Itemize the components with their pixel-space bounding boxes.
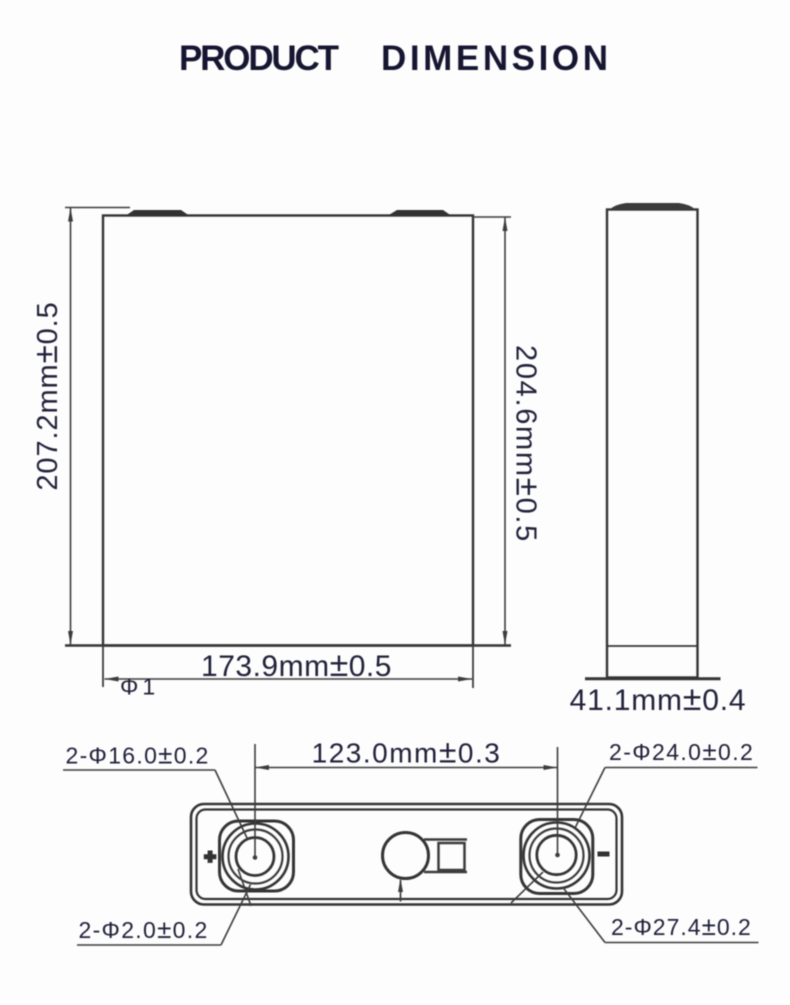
svg-text:123.0mm±0.3: 123.0mm±0.3	[312, 734, 502, 770]
svg-text:204.6mm±0.5: 204.6mm±0.5	[510, 345, 547, 543]
svg-text:Φ1: Φ1	[120, 674, 159, 700]
svg-text:207.2mm±0.5: 207.2mm±0.5	[27, 301, 64, 490]
svg-text:DIMENSION: DIMENSION	[381, 39, 608, 78]
svg-text:41.1mm±0.4: 41.1mm±0.4	[570, 680, 747, 718]
svg-text:PRODUCT: PRODUCT	[179, 39, 339, 78]
svg-text:2-Φ27.4±0.2: 2-Φ27.4±0.2	[611, 911, 752, 941]
svg-text:173.9mm±0.5: 173.9mm±0.5	[201, 646, 392, 684]
svg-text:2-Φ2.0±0.2: 2-Φ2.0±0.2	[79, 914, 209, 944]
svg-text:2-Φ16.0±0.2: 2-Φ16.0±0.2	[66, 740, 210, 770]
svg-text:2-Φ24.0±0.2: 2-Φ24.0±0.2	[609, 736, 754, 766]
